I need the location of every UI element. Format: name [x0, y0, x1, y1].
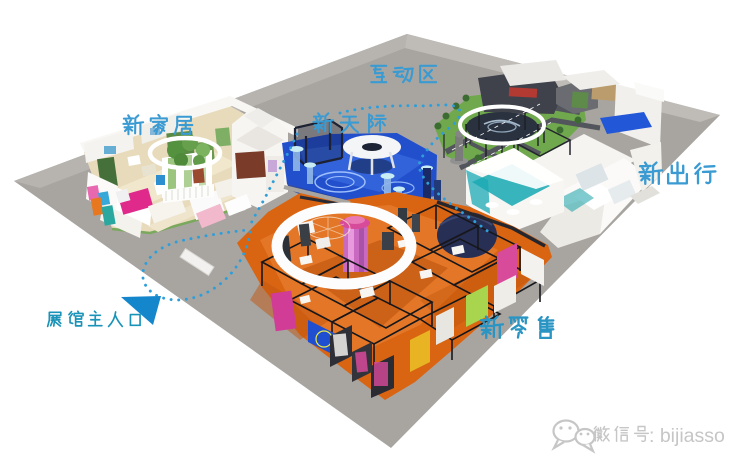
svg-text:: bijiasso: : bijiasso [649, 425, 725, 447]
